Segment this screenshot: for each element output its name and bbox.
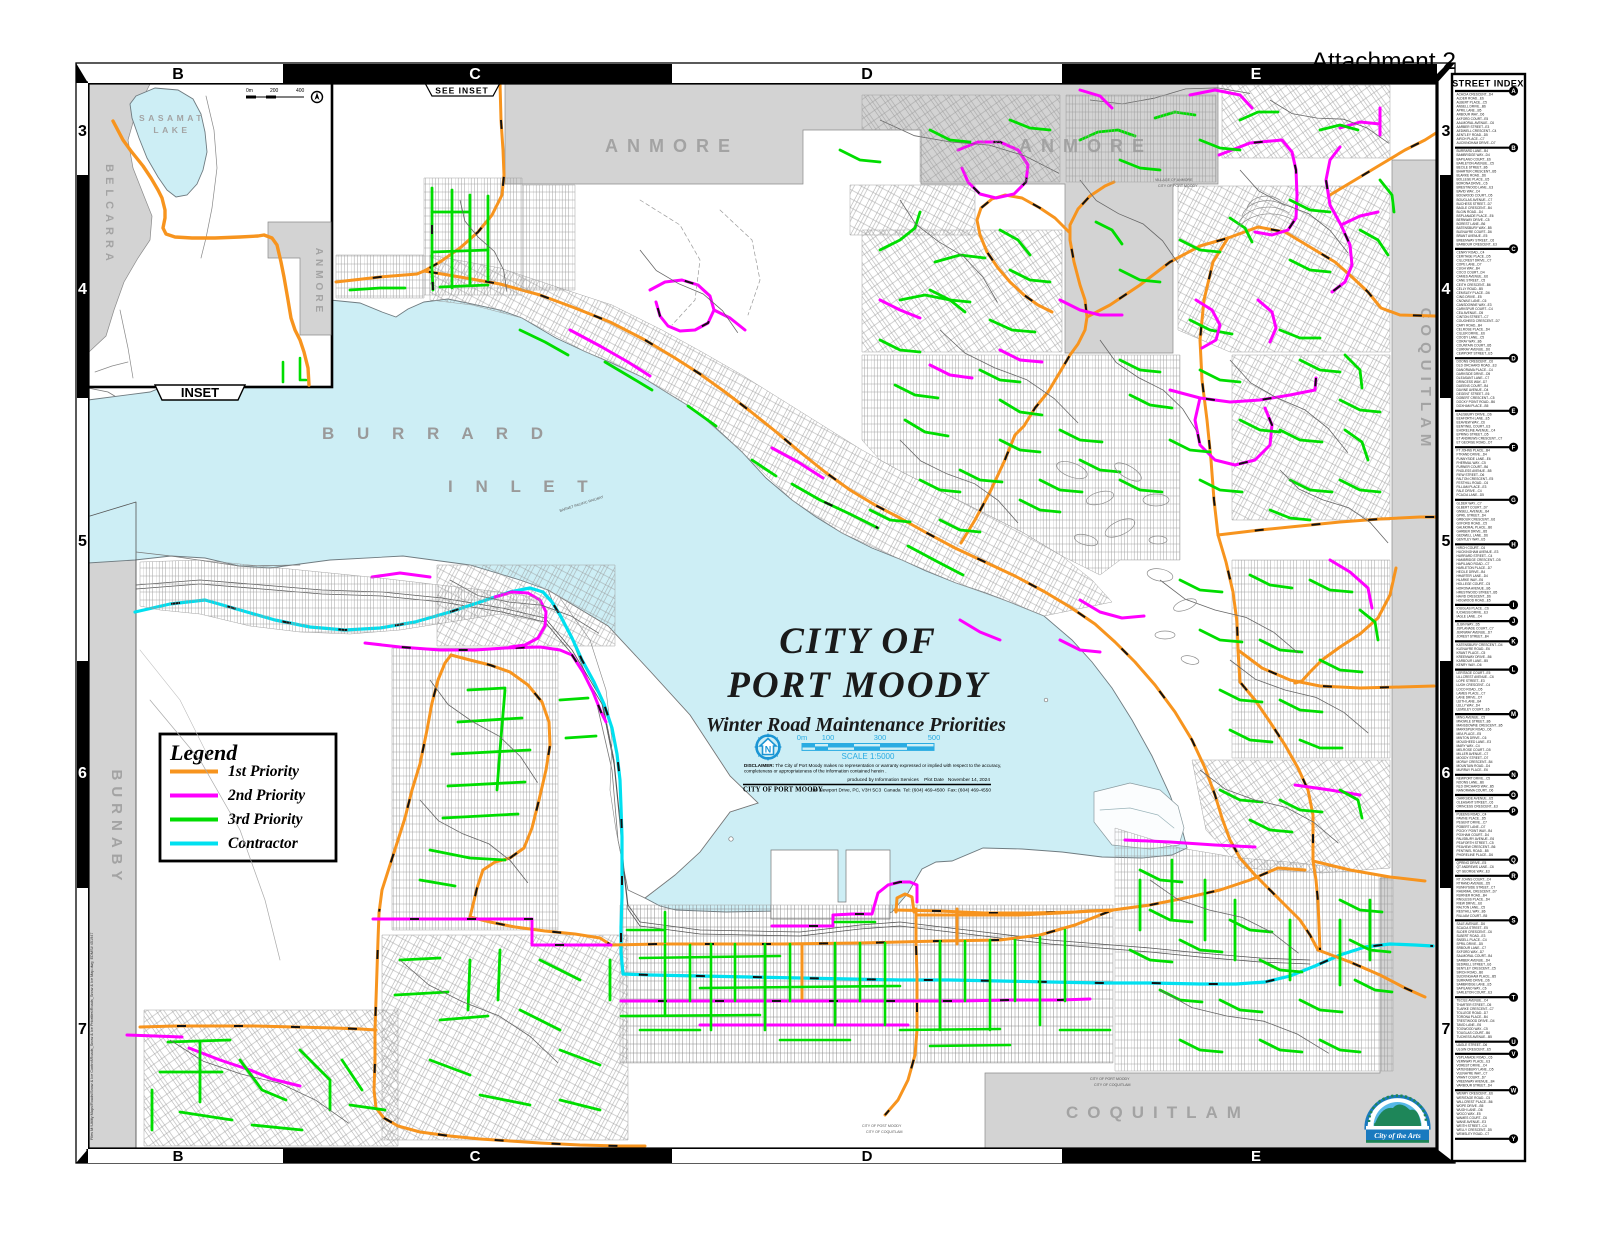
svg-text:PORT MOODY: PORT MOODY [726,665,990,706]
svg-text:KENRY WAY...D6: KENRY WAY...D6 [1457,663,1482,667]
svg-text:INSET: INSET [181,385,219,400]
svg-text:O: O [1511,793,1516,799]
svg-text:SARLETON COURT...E3: SARLETON COURT...E3 [1457,991,1493,995]
svg-text:HOGWOOD ROAD...E5: HOGWOOD ROAD...E5 [1457,598,1491,602]
svg-text:SASAMAT: SASAMAT [139,113,205,123]
svg-text:L: L [1512,668,1516,674]
svg-text:7: 7 [1442,1021,1451,1038]
svg-text:T: T [1512,995,1516,1001]
svg-text:produced by Information Servic: produced by Information Services Plot Da… [847,777,990,783]
svg-text:CITY OF PORT MOODY: CITY OF PORT MOODY [1090,1077,1130,1081]
svg-text:Contractor: Contractor [228,835,299,852]
svg-text:NANORAMA COURT...D6: NANORAMA COURT...D6 [1457,788,1494,792]
svg-text:D: D [862,1148,873,1165]
svg-text:MURRAY PLACE...E6: MURRAY PLACE...E6 [1457,768,1489,772]
svg-text:R: R [1511,874,1516,880]
svg-text:4: 4 [78,281,87,298]
svg-text:completeness or appropriatenes: completeness or appropriateness of the i… [744,769,887,774]
svg-text:RILLIAM COURT...B5: RILLIAM COURT...B5 [1457,914,1488,918]
svg-text:7: 7 [78,1021,87,1038]
svg-text:3: 3 [1442,123,1451,140]
svg-text:PHORELINE PLACE...D6: PHORELINE PLACE...D6 [1457,853,1494,857]
svg-text:Y: Y [1511,1137,1515,1143]
svg-text:ET GEORGE ROAD...D7: ET GEORGE ROAD...D7 [1457,441,1493,445]
svg-text:ULGIN CRESCENT...E5: ULGIN CRESCENT...E5 [1457,1047,1492,1051]
svg-text:I N L E T: I N L E T [448,477,597,496]
svg-text:GENTLEY WAY...E5: GENTLEY WAY...E5 [1457,538,1486,542]
svg-text:2nd Priority: 2nd Priority [227,787,305,804]
svg-text:CITY OF COQUITLAM: CITY OF COQUITLAM [866,1130,902,1134]
svg-text:V: V [1511,1052,1515,1058]
svg-text:FCACIA LANE...D5: FCACIA LANE...D5 [1457,493,1485,497]
svg-text:H: H [1511,542,1515,548]
svg-text:5: 5 [1442,533,1451,550]
svg-text:WEMSLEY ROAD...C7: WEMSLEY ROAD...C7 [1457,1132,1490,1136]
svg-text:BARBOUR CRESCENT...E3: BARBOUR CRESCENT...E3 [1457,242,1498,246]
svg-text:1st Priority: 1st Priority [228,763,299,780]
svg-text:6: 6 [78,765,87,782]
svg-text:E: E [1251,66,1262,83]
svg-text:D: D [861,66,873,83]
svg-text:F: F [1512,445,1516,451]
svg-text:100: 100 [822,733,835,742]
svg-text:4: 4 [1442,281,1451,298]
svg-text:N: N [1511,773,1515,779]
svg-text:ANMORE: ANMORE [313,248,324,316]
svg-text:Winter Road Maintenance Priori: Winter Road Maintenance Priorities [706,714,1006,736]
svg-text:CITY OF POST MOODY: CITY OF POST MOODY [862,1124,902,1128]
svg-text:B U R R A R D: B U R R A R D [322,424,552,443]
svg-text:BELCARRA: BELCARRA [103,164,115,266]
svg-text:S: S [1511,918,1515,924]
svg-text:P: P [1511,809,1515,815]
svg-text:C: C [1511,247,1516,253]
svg-text:M: M [1511,712,1516,718]
svg-text:Q: Q [1511,858,1516,864]
svg-text:CEWPORT STREET...E5: CEWPORT STREET...E5 [1457,352,1493,356]
svg-text:VARBOUR STREET...D4: VARBOUR STREET...D4 [1457,1084,1493,1088]
svg-text:B: B [1511,146,1516,152]
svg-text:Files M:\Utility Maps\Roads\Sn: Files M:\Utility Maps\Roads\Snow & Ice C… [90,933,94,1140]
svg-text:W: W [1511,1088,1517,1094]
svg-text:200: 200 [270,88,279,94]
svg-text:JOREST STREET...B4: JOREST STREET...B4 [1457,635,1489,639]
svg-text:5: 5 [78,533,87,550]
svg-text:C: C [470,1148,481,1165]
svg-text:A: A [1511,89,1516,95]
svg-text:DISCLAIMER: The City of Port M: DISCLAIMER: The City of Port Moody makes… [744,763,1001,768]
svg-text:C: C [469,66,481,83]
svg-text:ANMORE: ANMORE [605,136,739,156]
svg-text:IAGLE LANE...C4: IAGLE LANE...C4 [1457,615,1483,619]
svg-text:3rd Priority: 3rd Priority [227,811,303,828]
svg-text:G: G [1511,498,1516,504]
svg-text:500: 500 [928,733,941,742]
svg-text:QT GEORGE WAY...E3: QT GEORGE WAY...E3 [1457,869,1490,873]
svg-text:ORINCESS CRESCENT...E3: ORINCESS CRESCENT...E3 [1457,805,1498,809]
svg-text:B: B [172,66,184,83]
svg-text:SEE INSET: SEE INSET [435,86,488,96]
svg-text:TUCHESS AVENUE...B5: TUCHESS AVENUE...B5 [1457,1035,1493,1039]
svg-text:Legend: Legend [169,740,238,765]
svg-text:LAKE: LAKE [153,125,190,135]
svg-text:B: B [173,1148,184,1165]
svg-text:BURNABY: BURNABY [108,770,125,887]
svg-text:CITY OF PORT MOODY: CITY OF PORT MOODY [1158,184,1198,188]
svg-text:K: K [1511,639,1516,645]
svg-text:D: D [1511,356,1516,362]
svg-text:City of the Arts: City of the Arts [1374,1131,1421,1140]
svg-text:SCALE 1:5000: SCALE 1:5000 [842,752,895,761]
svg-text:CITY OF COQUITLAM: CITY OF COQUITLAM [1094,1083,1130,1087]
svg-text:300: 300 [874,733,887,742]
svg-text:AUCKINGHAM DRIVE...D7: AUCKINGHAM DRIVE...D7 [1457,141,1496,145]
svg-text:N: N [765,745,772,755]
svg-text:0m: 0m [797,733,807,742]
svg-text:LEMSLEY COURT...E6: LEMSLEY COURT...E6 [1457,708,1490,712]
svg-text:E: E [1511,409,1515,415]
svg-text:COQUITLAM: COQUITLAM [1066,1103,1250,1122]
svg-text:400: 400 [296,88,305,94]
svg-text:U: U [1511,1040,1515,1046]
svg-text:DOXHAM PLACE...B5: DOXHAM PLACE...B5 [1457,404,1489,408]
svg-text:100 Newport Drive, PC, V3H 5C3: 100 Newport Drive, PC, V3H 5C3 Canada Te… [810,788,991,794]
svg-text:6: 6 [1442,765,1451,782]
svg-text:J: J [1512,619,1515,625]
svg-text:COQUITLAM: COQUITLAM [1417,308,1434,453]
svg-text:3: 3 [78,123,87,140]
svg-text:CITY OF: CITY OF [779,621,937,662]
svg-text:E: E [1251,1148,1261,1165]
svg-text:0m: 0m [246,88,253,94]
